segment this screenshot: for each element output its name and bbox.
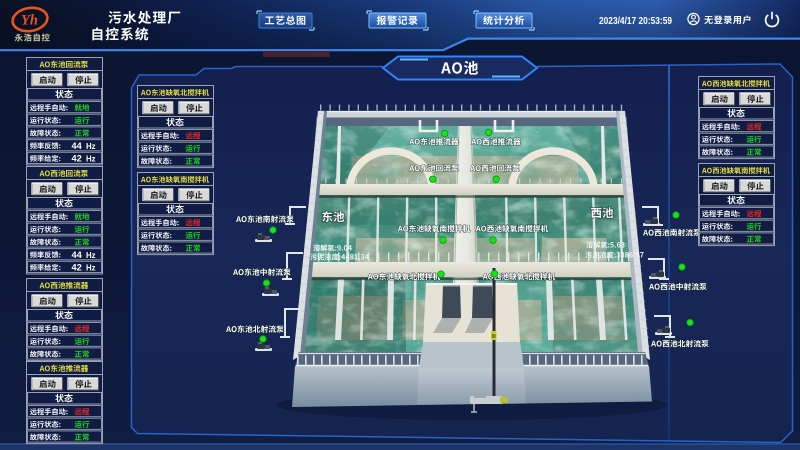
svg-text:Hz: Hz (86, 251, 96, 260)
svg-text:44: 44 (72, 250, 83, 260)
svg-text:Hz: Hz (86, 264, 96, 273)
svg-text:Yh: Yh (21, 13, 38, 29)
svg-text:44: 44 (72, 141, 83, 151)
svg-text:42: 42 (72, 154, 82, 164)
svg-text:Hz: Hz (86, 155, 96, 164)
svg-text:2023/4/17 20:53:59: 2023/4/17 20:53:59 (599, 16, 672, 27)
svg-text:Hz: Hz (86, 142, 96, 151)
svg-text:42: 42 (72, 263, 82, 273)
